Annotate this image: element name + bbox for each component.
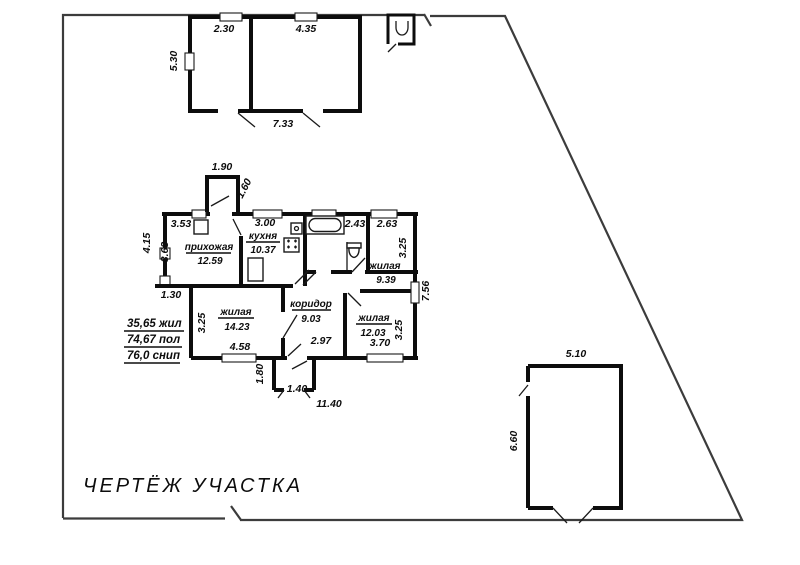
room-area-living-small: 9.39 bbox=[376, 275, 396, 286]
shed-door-leaf-1 bbox=[238, 113, 255, 127]
outhouse bbox=[388, 15, 414, 52]
dim-rear-porch-depth: 1.80 bbox=[254, 364, 266, 385]
sink-icon bbox=[291, 223, 302, 234]
house-window-living-mid bbox=[222, 354, 256, 362]
gate-mark-top bbox=[424, 14, 431, 26]
room-name-living-mid: жилая bbox=[219, 307, 251, 318]
door-swing-rear-porch bbox=[292, 361, 307, 369]
area-summary: 35,65 жил 74,67 пол 76,0 снип bbox=[124, 318, 184, 363]
dim-shed-total: 7.33 bbox=[273, 118, 294, 130]
room-area-kitchen: 10.37 bbox=[250, 245, 275, 256]
dim-garage-height: 6.60 bbox=[508, 431, 520, 452]
dim-left-step: 1.30 bbox=[161, 289, 182, 301]
dim-shed-left-room: 2.30 bbox=[213, 23, 235, 35]
door-swing-living-right bbox=[348, 293, 361, 306]
dim-house-total-width: 11.40 bbox=[316, 398, 342, 410]
garage-building bbox=[519, 366, 621, 523]
outhouse-door-tick bbox=[388, 44, 396, 52]
dim-living-small-height: 3.25 bbox=[397, 238, 409, 259]
gate-mark-bottom bbox=[231, 506, 241, 520]
dim-living-small-width: 2.63 bbox=[376, 218, 398, 230]
drawing-title: ЧЕРТЁЖ УЧАСТКА bbox=[83, 475, 303, 497]
area-snip-total: 76,0 снип bbox=[127, 350, 180, 362]
dim-hallway-height: 3.63 bbox=[159, 242, 171, 263]
dim-living-mid-width: 4.58 bbox=[229, 341, 251, 353]
door-swing-entry-porch bbox=[211, 196, 229, 206]
shed-building bbox=[185, 13, 362, 127]
room-name-kitchen: кухня bbox=[249, 231, 277, 242]
room-area-hallway: 12.59 bbox=[197, 256, 222, 267]
shed-window-1 bbox=[220, 13, 242, 21]
room-area-living-right: 12.03 bbox=[360, 328, 385, 339]
house-window-living-small bbox=[371, 210, 397, 218]
dim-kitchen-width: 3.00 bbox=[255, 217, 276, 229]
dimension-labels: 2.30 4.35 5.30 7.33 1.90 1.60 3.53 3.00 … bbox=[141, 23, 586, 451]
garage-side-door-tick bbox=[519, 385, 528, 396]
house-window-right bbox=[411, 282, 419, 303]
room-name-corridor: коридор bbox=[290, 299, 332, 310]
dim-garage-width: 5.10 bbox=[566, 348, 587, 360]
shed-door-leaf-2 bbox=[303, 113, 320, 127]
toilet-icon bbox=[347, 243, 361, 258]
dim-shed-height: 5.30 bbox=[168, 51, 180, 72]
room-area-corridor: 9.03 bbox=[301, 314, 321, 325]
door-swing-living-small bbox=[352, 258, 365, 272]
dim-rear-porch-width: 1.40 bbox=[287, 383, 308, 395]
area-living-total: 35,65 жил bbox=[127, 318, 182, 330]
outhouse-toilet-icon bbox=[396, 21, 408, 35]
door-swing-exit bbox=[288, 344, 301, 356]
dim-house-right-height: 7.56 bbox=[420, 281, 432, 302]
room-area-living-mid: 14.23 bbox=[224, 322, 249, 333]
dim-living-right-height: 3.25 bbox=[393, 320, 405, 341]
dim-living-mid-height: 3.25 bbox=[196, 313, 208, 334]
house-window-living-right bbox=[367, 354, 403, 362]
room-name-hallway: прихожая bbox=[185, 242, 234, 253]
door-swing-living-mid bbox=[283, 315, 297, 338]
area-useful-total: 74,67 пол bbox=[127, 334, 180, 346]
site-plan-drawing: 2.30 4.35 5.30 7.33 1.90 1.60 3.53 3.00 … bbox=[0, 0, 800, 565]
room-name-living-small: жилая bbox=[368, 261, 400, 272]
dim-entry-porch-width: 1.90 bbox=[212, 161, 233, 173]
door-swing-hall-kitchen bbox=[233, 219, 241, 235]
kitchen-cupboard-icon bbox=[248, 258, 263, 281]
site-plan-page: 2.30 4.35 5.30 7.33 1.90 1.60 3.53 3.00 … bbox=[0, 0, 800, 565]
dim-shed-right-room: 4.35 bbox=[295, 23, 317, 35]
dim-corridor-width: 2.97 bbox=[310, 335, 333, 347]
dim-bathroom-width: 2.43 bbox=[344, 218, 366, 230]
house-window-hall bbox=[192, 210, 206, 218]
bathtub-icon bbox=[306, 216, 344, 234]
furnace-icon bbox=[194, 220, 208, 234]
shed-window-2 bbox=[295, 13, 317, 21]
dim-house-left-height: 4.15 bbox=[141, 233, 153, 255]
shed-window-left bbox=[185, 53, 194, 70]
dim-hallway-width: 3.53 bbox=[171, 218, 192, 230]
stove-icon bbox=[284, 238, 299, 252]
room-name-living-right: жилая bbox=[357, 313, 389, 324]
